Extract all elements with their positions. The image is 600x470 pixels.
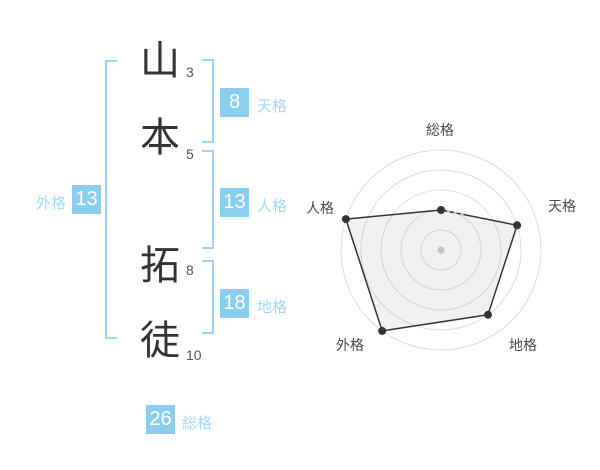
name-analysis-panel: 山 3 本 5 拓 8 徒 10 8 天格 13 人格 18 地格 外格 13 … (0, 0, 600, 470)
jinkaku-value-box: 13 (220, 188, 249, 217)
gaikaku-bracket (105, 60, 117, 339)
radar-axis-label-soukaku: 総格 (426, 122, 454, 138)
radar-axis-label-jinkaku: 人格 (306, 200, 334, 216)
stroke-count-1: 3 (186, 64, 194, 80)
stroke-count-4: 10 (186, 347, 202, 363)
soukaku-label: 総格 (182, 412, 212, 433)
jinkaku-bracket (202, 150, 214, 249)
name-char-4: 徒 (130, 321, 190, 361)
chikaku-label: 地格 (257, 296, 287, 317)
tenkaku-bracket (202, 59, 214, 143)
jinkaku-label: 人格 (257, 195, 287, 216)
radar-axis-label-chikaku: 地格 (509, 337, 537, 353)
tenkaku-label: 天格 (257, 95, 287, 116)
name-char-2: 本 (130, 118, 190, 158)
radar-chart: 総格 天格 地格 外格 人格 (301, 110, 581, 390)
soukaku-value-box: 26 (146, 405, 175, 434)
stroke-count-2: 5 (186, 146, 194, 162)
name-char-3: 拓 (130, 246, 190, 286)
gaikaku-label: 外格 (36, 192, 66, 213)
chikaku-value-box: 18 (220, 289, 249, 318)
tenkaku-value-box: 8 (220, 88, 249, 117)
radar-axis-label-gaikaku: 外格 (336, 337, 364, 353)
radar-axis-label-tenkaku: 天格 (548, 198, 576, 214)
gaikaku-value-box: 13 (72, 185, 101, 214)
name-char-1: 山 (130, 41, 190, 81)
chikaku-bracket (202, 260, 214, 334)
radar-plot-area (341, 150, 541, 350)
stroke-count-3: 8 (186, 262, 194, 278)
